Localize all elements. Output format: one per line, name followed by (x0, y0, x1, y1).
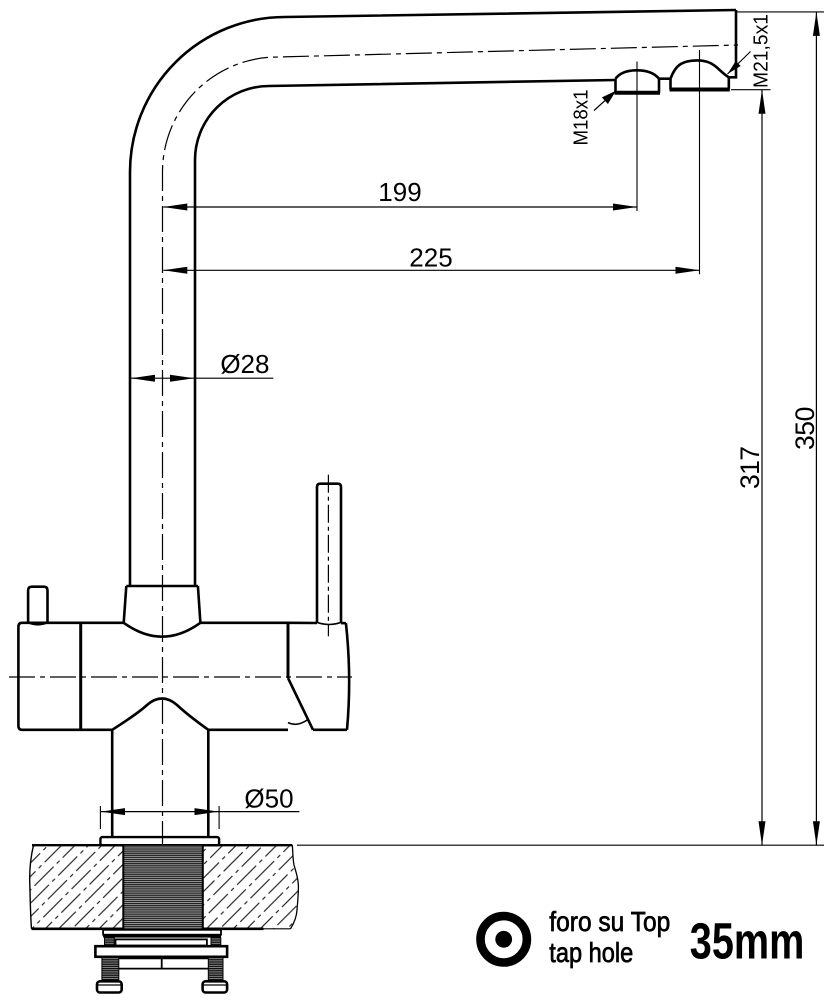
svg-text:225: 225 (409, 243, 452, 273)
svg-text:Ø50: Ø50 (244, 784, 293, 814)
svg-text:M21,5x1: M21,5x1 (750, 14, 773, 88)
svg-text:35mm: 35mm (690, 912, 805, 969)
svg-text:350: 350 (790, 407, 820, 450)
svg-text:M18x1: M18x1 (570, 90, 593, 146)
svg-text:317: 317 (735, 446, 765, 489)
svg-text:tap hole: tap hole (549, 937, 633, 968)
svg-text:foro su Top: foro su Top (549, 906, 670, 937)
svg-text:199: 199 (378, 177, 421, 207)
svg-text:Ø28: Ø28 (220, 349, 269, 379)
